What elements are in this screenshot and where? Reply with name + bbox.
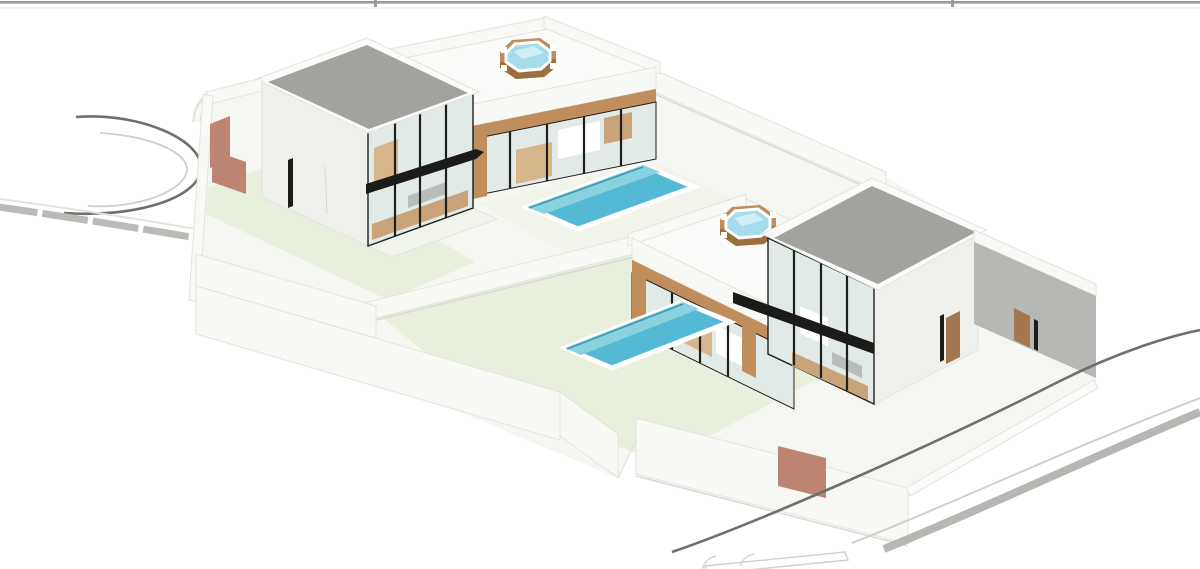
- architectural-render: [0, 0, 1200, 569]
- villa1-slit-window: [288, 158, 293, 208]
- villa2-side-door: [946, 311, 960, 364]
- top-border-tick-left: [374, 0, 377, 7]
- jacuzzi-corner-cap: [550, 63, 556, 69]
- right-wall-door-slit: [1034, 319, 1038, 351]
- villa1-wing-wood-post: [473, 123, 487, 199]
- top-border-faint-line: [0, 7, 1200, 8]
- render-viewport: [0, 0, 1200, 569]
- top-border-tick-right: [951, 0, 954, 7]
- top-border-line: [0, 1, 1200, 4]
- villa2-slit-window: [940, 314, 944, 362]
- villa2-wing-wood-post-mid: [742, 314, 756, 378]
- jacuzzi-corner-cap: [770, 212, 776, 218]
- jacuzzi-corner-cap: [721, 232, 727, 238]
- jacuzzi-corner-cap: [721, 214, 727, 220]
- jacuzzi-corner-cap: [550, 45, 556, 51]
- jacuzzi-corner-cap: [501, 47, 507, 53]
- villa1-jacuzzi: [500, 38, 556, 79]
- jacuzzi-corner-cap: [501, 65, 507, 71]
